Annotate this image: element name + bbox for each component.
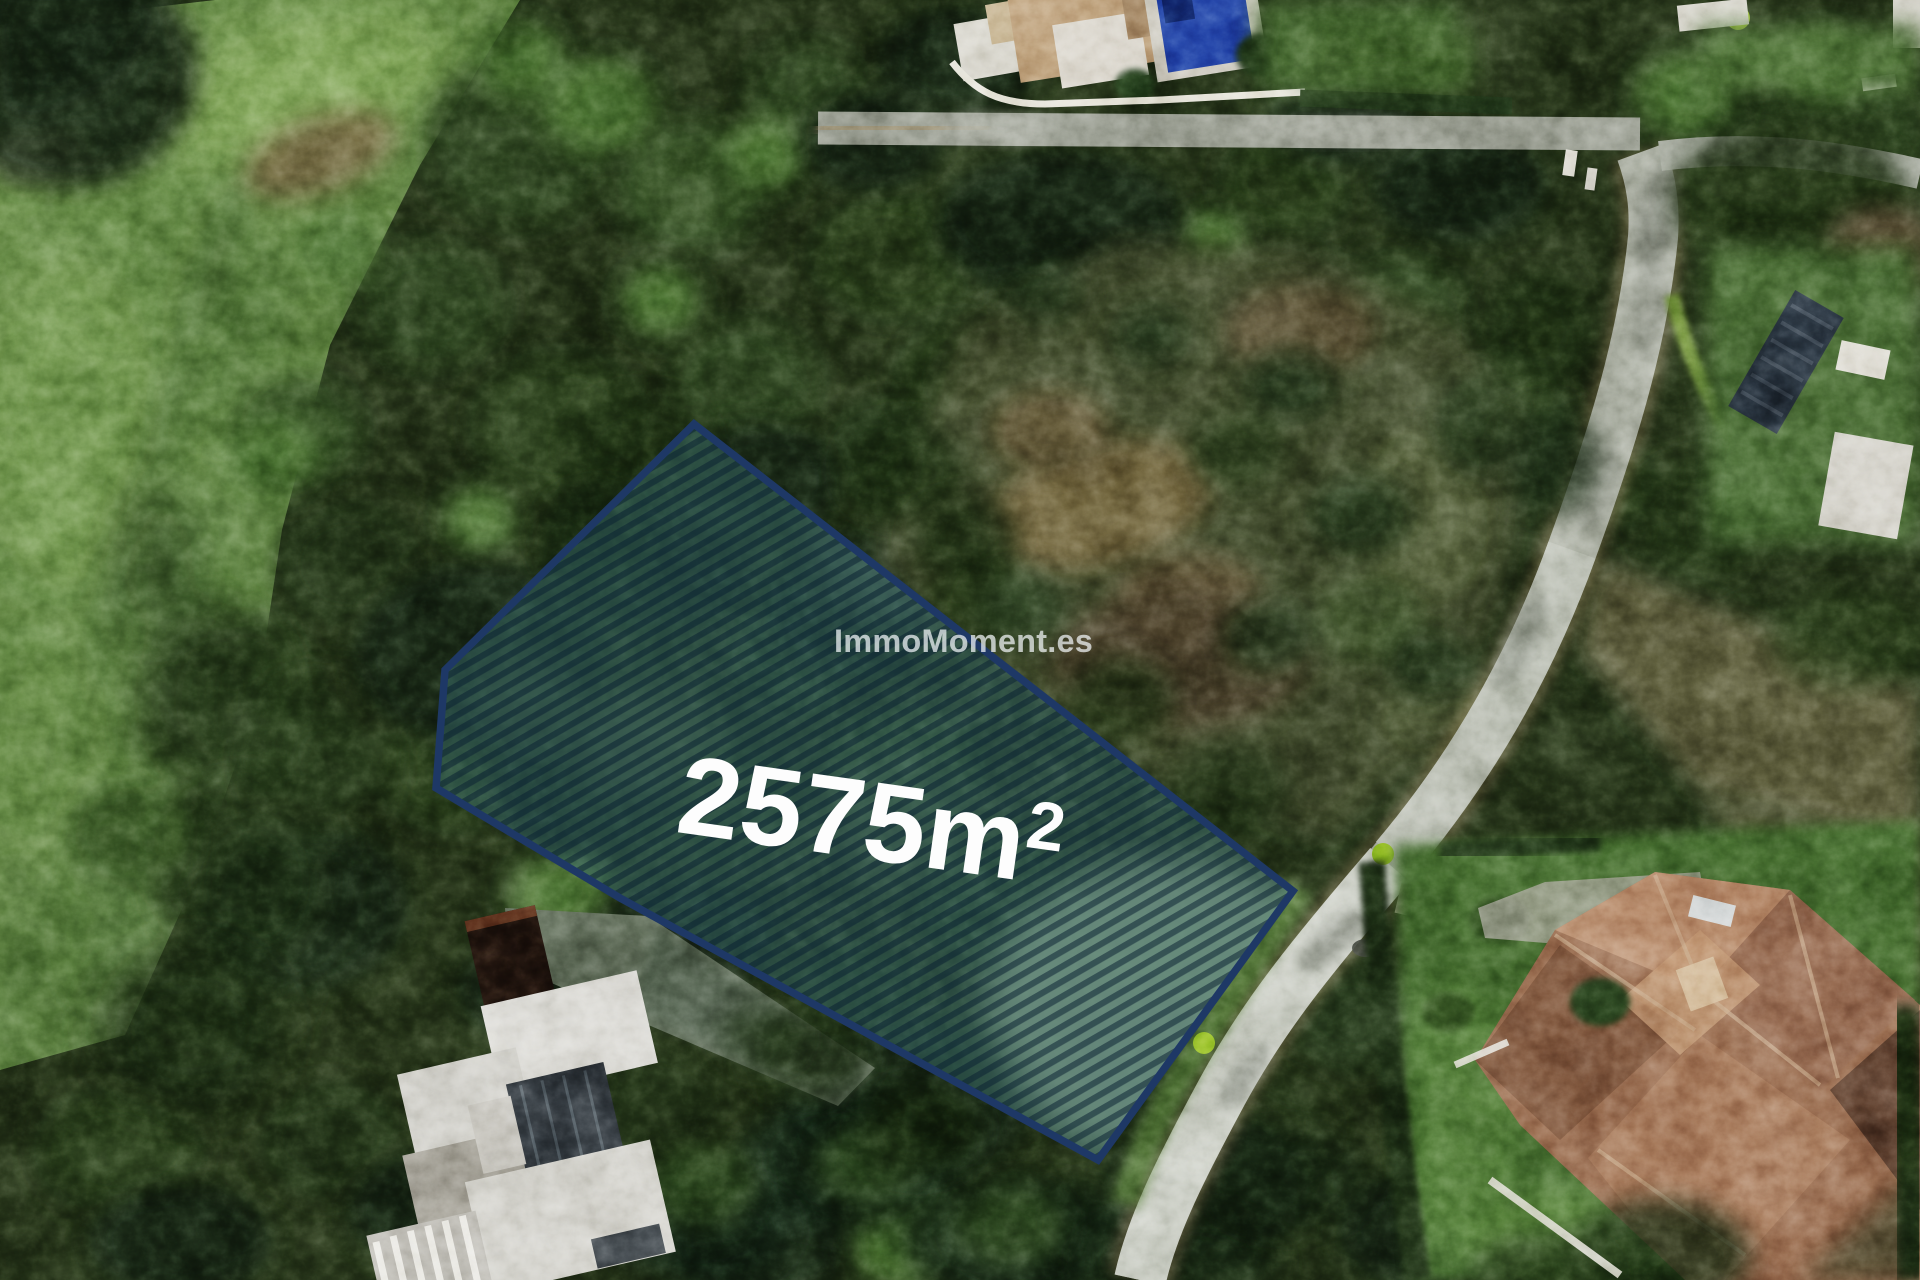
svg-text:ImmoMoment.es: ImmoMoment.es bbox=[834, 623, 1093, 659]
